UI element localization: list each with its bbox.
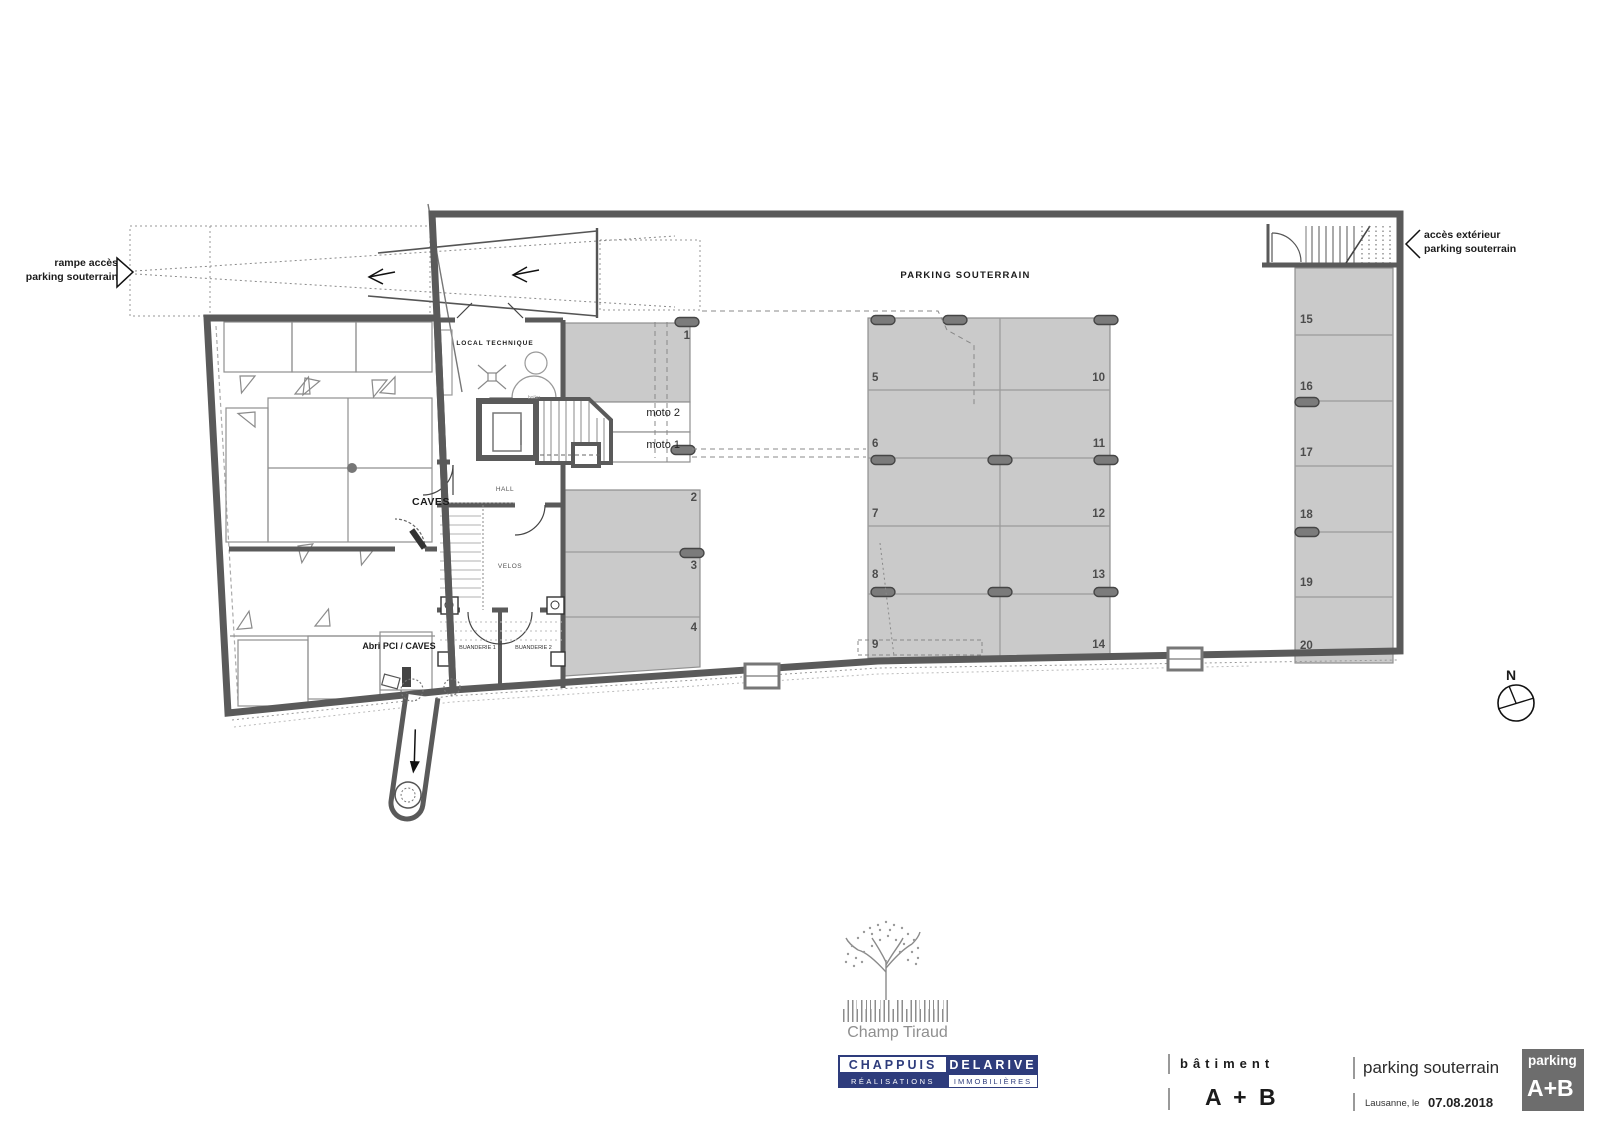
exterior-access-label: accès extérieur parking souterrain (1424, 229, 1516, 256)
champ-tiraud-tree-logo (845, 921, 920, 1004)
parking-spot-number: 5 (872, 372, 898, 384)
divider (1168, 1054, 1170, 1074)
parking-spot-number: 1 (664, 330, 690, 342)
drawing-title: parking souterrain (1363, 1058, 1499, 1078)
parking-spot-number: 2 (671, 492, 697, 504)
parking-spot-number: 12 (1079, 508, 1105, 520)
project-name: Champ Tiraud (840, 1024, 955, 1042)
parking-spot-number: 15 (1300, 314, 1326, 326)
floor-plan-page: rampe accès parking souterrain accès ext… (0, 0, 1600, 1132)
company-row1-right: DELARIVE (948, 1055, 1038, 1074)
parking-spot-number: 17 (1300, 447, 1326, 459)
tree-canopy-dots (845, 921, 919, 967)
place-label: Lausanne, le (1365, 1098, 1419, 1109)
parking-area-title: PARKING SOUTERRAIN (858, 270, 1073, 281)
divider (1353, 1057, 1355, 1079)
parking-spot-number: 3 (671, 560, 697, 572)
parking-spot-number: 14 (1079, 639, 1105, 651)
parking-spot-number: 4 (671, 622, 697, 634)
badge-bottom-label: A+B (1527, 1075, 1574, 1102)
parking-spot-number: 18 (1300, 509, 1326, 521)
floor-plan-drawing (0, 0, 1600, 1132)
elevator (479, 401, 536, 458)
batiment-value: A + B (1205, 1084, 1279, 1111)
company-row2-left: RÉALISATIONS (838, 1074, 948, 1088)
parking-spot-number: 16 (1300, 381, 1326, 393)
batiment-label: bâtiment (1180, 1056, 1274, 1071)
parking-spot-number: 7 (872, 508, 898, 520)
divider (1353, 1093, 1355, 1111)
divider (1168, 1088, 1170, 1110)
chappuis-delarive-logo: CHAPPUIS DELARIVE RÉALISATIONS IMMOBILIÈ… (838, 1055, 1038, 1088)
parking-spot-number: 6 (872, 438, 898, 450)
exterior-access-arrow-icon (1406, 230, 1420, 258)
parking-spot-number: 19 (1300, 577, 1326, 589)
parking-spot-number: 9 (872, 639, 898, 651)
champ-tiraud-barcode-trim (843, 1000, 951, 1009)
parking-spot-number: 13 (1079, 569, 1105, 581)
room-buanderie-2: BUANDERIE 2 (506, 645, 561, 651)
escape-tunnel (389, 694, 438, 821)
company-row1-left: CHAPPUIS (838, 1055, 948, 1074)
parking-spot-number: 8 (872, 569, 898, 581)
room-local-technique: LOCAL TECHNIQUE (445, 340, 545, 347)
parking-spot-number: 20 (1300, 640, 1326, 652)
drawing-date: 07.08.2018 (1428, 1095, 1493, 1110)
company-row2-right: IMMOBILIÈRES (948, 1074, 1038, 1088)
north-arrow-icon (1498, 685, 1534, 721)
ramp-access-arrow-icon (117, 258, 133, 287)
room-velos: VELOS (485, 563, 535, 570)
room-hall: HALL (480, 486, 530, 493)
parking-ab-badge: parking A+B (1522, 1049, 1584, 1111)
parking-spot-number: 10 (1079, 372, 1105, 384)
exterior-access-stair (1262, 222, 1399, 265)
moto-spot-2-label: moto 2 (590, 407, 680, 419)
room-caves: CAVES (400, 496, 462, 508)
north-label: N (1506, 667, 1516, 683)
badge-top-label: parking (1528, 1053, 1577, 1068)
boiler-label: boiler (514, 395, 554, 401)
parking-spot-number: 11 (1079, 438, 1105, 450)
room-abri-pci: Abri PCI / CAVES (335, 641, 463, 651)
moto-spot-1-label: moto 1 (590, 439, 680, 451)
ramp-access-label: rampe accès parking souterrain (18, 257, 118, 284)
